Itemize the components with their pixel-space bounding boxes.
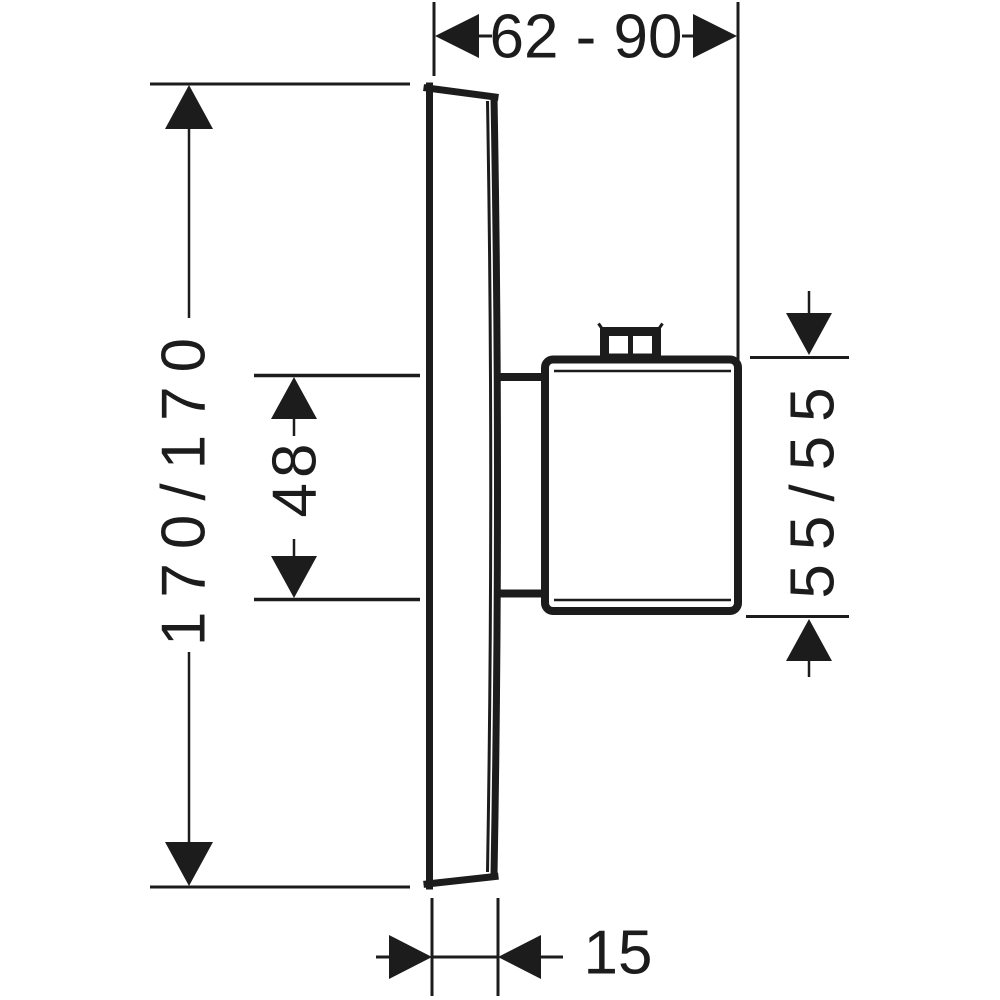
dim-top-width: 62 - 90 xyxy=(434,2,738,360)
arrowhead-up xyxy=(786,619,832,661)
safety-stop-clip xyxy=(599,324,663,362)
arrowhead-down xyxy=(271,556,317,598)
dim-plate-depth: 15 xyxy=(376,898,652,996)
dim-stem-height: 48 xyxy=(254,376,420,600)
arrowhead-down xyxy=(786,313,832,355)
escutcheon-plate xyxy=(427,86,498,886)
cartridge-stem xyxy=(498,377,547,594)
plate-front-inner-line xyxy=(488,101,491,872)
dim-label-width-range: 62 - 90 xyxy=(489,3,682,72)
technical-drawing: 62 - 90 170/170 48 55/ xyxy=(0,0,1000,1000)
arrowhead-left xyxy=(435,14,479,58)
arrowhead-left xyxy=(498,935,541,979)
arrowhead-up xyxy=(271,377,317,419)
plate-top-edge xyxy=(427,88,495,97)
arrowhead-right xyxy=(693,14,737,58)
drawing-canvas: 62 - 90 170/170 48 55/ xyxy=(0,0,1000,1000)
clip-right-window xyxy=(633,336,652,354)
arrowhead-right xyxy=(389,935,432,979)
dim-label-plate-height: 170/170 xyxy=(150,324,219,646)
dim-label-stem-height: 48 xyxy=(261,439,330,518)
arrowhead-up xyxy=(165,85,213,129)
plate-bottom-edge xyxy=(427,877,495,885)
handle-knob xyxy=(545,360,738,612)
clip-left-window xyxy=(609,336,628,354)
arrowhead-down xyxy=(165,842,213,886)
dim-label-handle-height: 55/55 xyxy=(779,373,848,598)
dim-handle-height: 55/55 xyxy=(746,291,849,677)
knob-body xyxy=(545,360,738,612)
plate-front-edge xyxy=(494,98,498,875)
dim-label-plate-depth: 15 xyxy=(584,919,653,988)
